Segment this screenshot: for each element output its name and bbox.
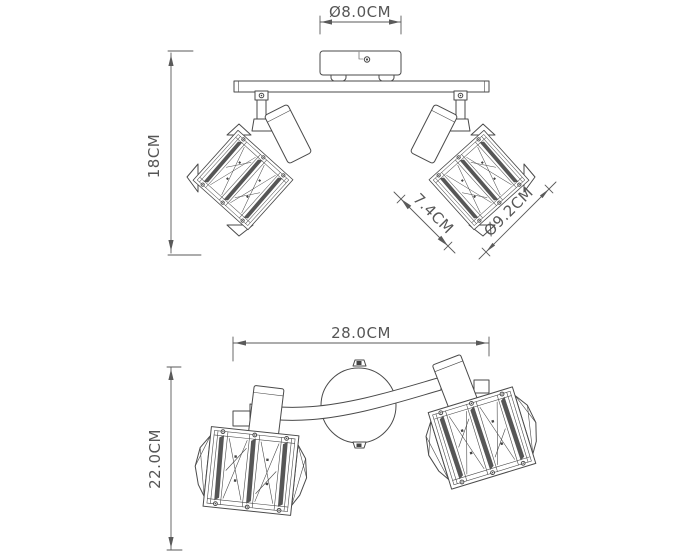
product-dimension-drawing: Ø8.0CM 18CM (0, 0, 700, 560)
dimension-canopy-diameter: Ø8.0CM (320, 3, 401, 34)
bar-end-right (474, 380, 489, 393)
crystal-cube-shade (191, 425, 311, 516)
spot-head-bottom-right (417, 354, 547, 492)
dim-depth-label: 22.0CM (146, 429, 164, 489)
spot-head-left (187, 91, 312, 236)
dimension-depth: 22.0CM (146, 367, 182, 550)
dimension-height: 18CM (145, 51, 201, 255)
dimension-width: 28.0CM (233, 324, 489, 361)
mounting-bar (234, 81, 489, 92)
dim-height-label: 18CM (145, 134, 163, 179)
crystal-cube-shade (417, 383, 547, 492)
ceiling-canopy (320, 51, 401, 82)
dim-width-label: 28.0CM (331, 324, 391, 342)
bottom-view: 28.0CM 22.0CM (146, 324, 547, 550)
dim-canopy-label: Ø8.0CM (329, 3, 391, 21)
bar-end-left (233, 411, 250, 426)
top-view: Ø8.0CM 18CM (145, 3, 556, 259)
